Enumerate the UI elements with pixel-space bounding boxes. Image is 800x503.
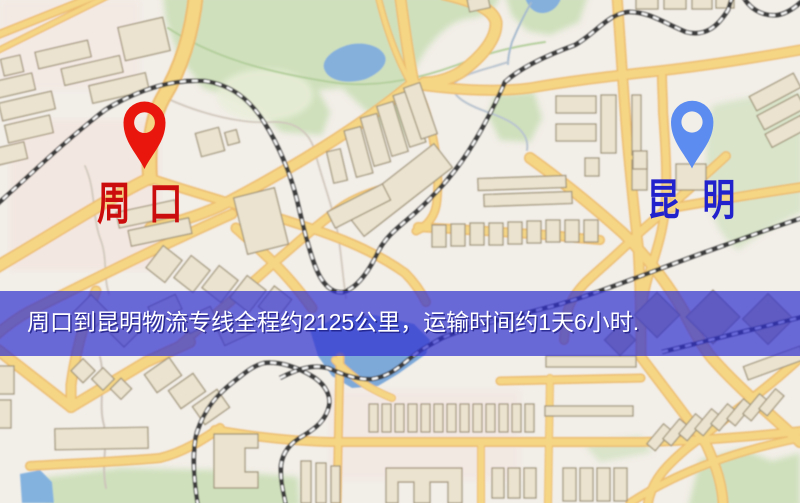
svg-text:昆明: 昆明 [647, 177, 758, 225]
svg-text:周口: 周口 [97, 179, 200, 229]
svg-text:周口到昆明物流专线全程约2125公里，运输时间约1天6小时.: 周口到昆明物流专线全程约2125公里，运输时间约1天6小时. [27, 309, 639, 335]
